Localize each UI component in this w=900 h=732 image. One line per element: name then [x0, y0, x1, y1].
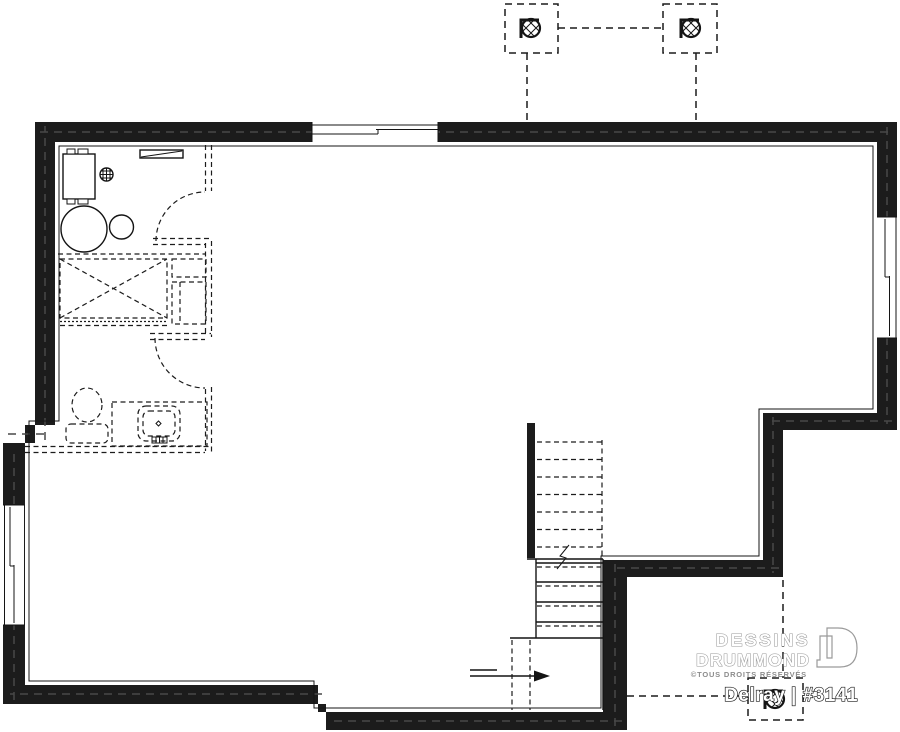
arrow-head	[534, 671, 550, 682]
brand-line1: DESSINS	[716, 630, 810, 650]
stair-upper-treads-dashed	[537, 440, 602, 558]
sink-faucet	[152, 437, 167, 443]
stair-landing	[510, 638, 603, 710]
window-top	[312, 121, 438, 143]
partition-horizontal-upper	[153, 239, 211, 245]
furnace-unit	[63, 149, 95, 204]
window-opening	[312, 121, 438, 143]
window-right	[876, 217, 898, 338]
electrical-panel	[140, 150, 183, 158]
shower-x-mark	[60, 259, 167, 318]
landing-dashed-edge	[512, 640, 530, 710]
sink-drain	[156, 421, 161, 426]
stair-direction-arrow	[470, 670, 550, 682]
future-cabinets	[172, 259, 206, 324]
water-heater	[61, 206, 107, 252]
window-left	[3, 505, 25, 625]
pressure-tank	[110, 215, 134, 239]
stair-side-wall	[527, 423, 535, 558]
brand-block: DESSINS DRUMMOND ©TOUS DROITS RÉSERVÉS D…	[691, 628, 858, 706]
partition-horizontal-lower	[25, 447, 211, 453]
partition-horizontal-middle	[150, 334, 211, 340]
interior-finish-line	[29, 146, 873, 708]
future-vanity-sink	[112, 402, 207, 446]
post-footing-top-left	[505, 4, 558, 53]
future-shower	[60, 259, 167, 326]
future-toilet	[66, 388, 108, 443]
basement-floor-plan-drawing: DESSINS DRUMMOND ©TOUS DROITS RÉSERVÉS D…	[0, 0, 900, 732]
future-door-swing-upper	[156, 192, 205, 241]
stair-break-symbol	[557, 545, 569, 569]
floor-plan-canvas: DESSINS DRUMMOND ©TOUS DROITS RÉSERVÉS D…	[0, 0, 900, 732]
post-footing-top-right	[663, 4, 717, 53]
brand-line2: DRUMMOND	[696, 650, 810, 670]
staircase	[470, 423, 603, 710]
plan-title: Delray | #3141	[724, 685, 858, 706]
future-door-swing-lower	[155, 338, 205, 388]
stair-lower-treads	[536, 559, 603, 710]
post-lines-top	[527, 53, 696, 122]
floor-drain	[100, 168, 113, 181]
brand-rights: ©TOUS DROITS RÉSERVÉS	[691, 670, 807, 679]
drummond-logo-icon	[817, 628, 857, 667]
